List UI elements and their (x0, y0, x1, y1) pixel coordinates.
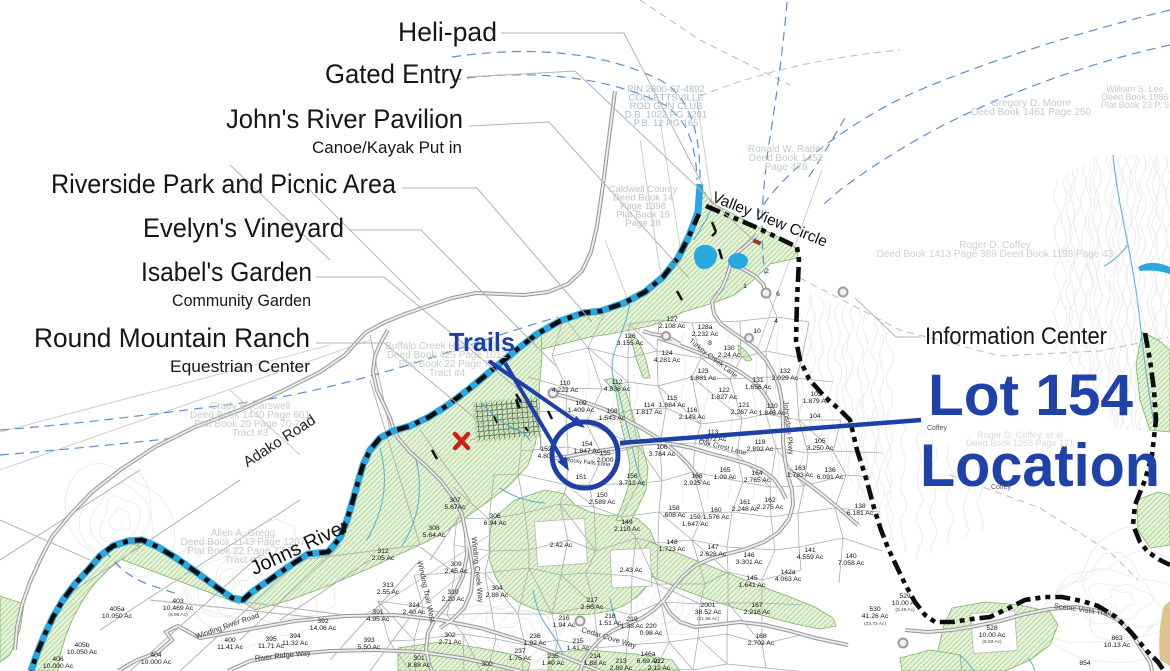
svg-text:104: 104 (809, 413, 821, 420)
svg-text:124: 124 (661, 350, 673, 357)
svg-text:6.69 Ac: 6.69 Ac (637, 658, 660, 665)
svg-text:(5.45 Ac): (5.45 Ac) (895, 607, 915, 613)
svg-text:2.89 Ac: 2.89 Ac (610, 665, 633, 671)
svg-text:2.42 Ac: 2.42 Ac (550, 542, 573, 549)
svg-text:4.222 Ac: 4.222 Ac (552, 387, 579, 394)
svg-text:1.817 Ac: 1.817 Ac (636, 409, 663, 416)
svg-text:6.94 Ac: 6.94 Ac (484, 520, 507, 527)
svg-text:141: 141 (804, 547, 816, 554)
svg-text:304: 304 (491, 585, 503, 592)
svg-text:110: 110 (560, 380, 571, 387)
svg-text:2.892 Ac: 2.892 Ac (747, 446, 774, 453)
svg-text:2.40 Ac: 2.40 Ac (403, 609, 426, 616)
svg-text:2.12 Ac: 2.12 Ac (648, 665, 671, 671)
svg-text:5.67Ac: 5.67Ac (444, 504, 466, 511)
svg-text:394: 394 (289, 633, 301, 640)
svg-text:1.723 Ac: 1.723 Ac (659, 546, 686, 553)
svg-text:395: 395 (265, 636, 277, 643)
svg-text:10.050 Ac: 10.050 Ac (67, 649, 98, 656)
svg-text:405a: 405a (109, 606, 124, 613)
svg-text:854: 854 (1079, 660, 1091, 667)
svg-text:128a: 128a (697, 324, 712, 331)
svg-text:146: 146 (743, 552, 755, 559)
svg-text:127: 127 (666, 316, 678, 323)
svg-text:1.38 Ac: 1.38 Ac (621, 623, 644, 630)
svg-text:Evelyn's Vineyard: Evelyn's Vineyard (143, 213, 344, 243)
svg-text:2.110 Ac: 2.110 Ac (614, 526, 641, 533)
svg-text:528: 528 (986, 625, 998, 632)
svg-text:2.925 Ac: 2.925 Ac (684, 480, 711, 487)
svg-text:406: 406 (52, 656, 64, 663)
svg-text:166: 166 (691, 473, 703, 480)
svg-text:4: 4 (774, 318, 778, 325)
svg-text:392: 392 (317, 618, 329, 625)
svg-text:Heli-pad: Heli-pad (398, 17, 497, 47)
svg-text:136: 136 (824, 467, 836, 474)
svg-text:120: 120 (766, 403, 778, 410)
svg-text:131: 131 (752, 377, 764, 384)
svg-text:155: 155 (599, 450, 611, 457)
svg-text:105: 105 (814, 438, 826, 445)
svg-text:119: 119 (755, 439, 766, 446)
svg-text:John's River Pavilion: John's River Pavilion (226, 104, 463, 134)
svg-text:151: 151 (575, 474, 587, 481)
svg-text:1.543 Ac: 1.543 Ac (599, 415, 626, 422)
svg-text:236: 236 (529, 633, 541, 640)
svg-text:1.879 Ac: 1.879 Ac (803, 398, 830, 405)
svg-text:126: 126 (624, 333, 636, 340)
svg-text:116: 116 (687, 407, 698, 414)
svg-text:163: 163 (794, 465, 806, 472)
svg-text:301: 301 (413, 655, 425, 662)
svg-text:10.13 Ac: 10.13 Ac (1104, 642, 1131, 649)
svg-text:4.063 Ac: 4.063 Ac (775, 576, 802, 583)
svg-text:138: 138 (854, 503, 866, 510)
svg-text:PIN 2600-67-4892COLLETTSVILLER: PIN 2600-67-4892COLLETTSVILLEROD GUN CLU… (625, 84, 707, 129)
svg-text:Canoe/Kayak Put in: Canoe/Kayak Put in (312, 138, 462, 157)
svg-text:145: 145 (746, 575, 758, 582)
svg-text:0.98 Ac: 0.98 Ac (640, 630, 663, 637)
svg-text:213: 213 (615, 658, 627, 665)
svg-text:38.52 Ac: 38.52 Ac (695, 609, 722, 616)
svg-text:302: 302 (444, 632, 456, 639)
svg-text:2.108 Ac: 2.108 Ac (659, 323, 686, 330)
svg-text:217: 217 (586, 597, 598, 604)
svg-text:216: 216 (558, 615, 570, 622)
svg-text:2001: 2001 (700, 602, 715, 609)
svg-text:(21.86 Ac): (21.86 Ac) (697, 616, 719, 622)
svg-text:313: 313 (382, 582, 394, 589)
svg-text:220: 220 (645, 623, 657, 630)
svg-text:2.216 Ac: 2.216 Ac (744, 609, 771, 616)
svg-text:312: 312 (377, 548, 389, 555)
svg-text:2.143 Ac: 2.143 Ac (679, 414, 706, 421)
svg-text:308: 308 (428, 525, 440, 532)
svg-text:8: 8 (708, 340, 712, 347)
svg-text:1.881 Ac: 1.881 Ac (690, 375, 717, 382)
svg-text:11.41 Ac: 11.41 Ac (217, 644, 244, 651)
svg-text:7.058 Ac: 7.058 Ac (838, 560, 865, 567)
svg-text:1.51 Ac: 1.51 Ac (599, 620, 622, 627)
svg-text:4.559 Ac: 4.559 Ac (797, 554, 824, 561)
svg-text:2.702 Ac: 2.702 Ac (748, 640, 775, 647)
svg-text:1.656 Ac: 1.656 Ac (745, 384, 772, 391)
svg-text:1: 1 (743, 283, 747, 290)
svg-text:Trails: Trails (449, 327, 515, 357)
svg-text:149: 149 (621, 519, 633, 526)
svg-text:309: 309 (450, 561, 462, 568)
svg-text:1.641 Ac: 1.641 Ac (739, 582, 766, 589)
svg-text:115: 115 (667, 395, 678, 402)
svg-text:300: 300 (481, 661, 493, 668)
svg-text:403: 403 (172, 598, 184, 605)
svg-text:1.884 Ac: 1.884 Ac (659, 402, 686, 409)
svg-text:2: 2 (765, 268, 769, 275)
svg-text:405b: 405b (74, 642, 89, 649)
svg-text:2.55 Ac: 2.55 Ac (377, 589, 400, 596)
svg-text:Riverside Park and Picnic Area: Riverside Park and Picnic Area (51, 169, 397, 199)
svg-text:108: 108 (606, 408, 618, 415)
svg-text:Information Center: Information Center (925, 323, 1107, 350)
svg-text:3.155 Ac: 3.155 Ac (617, 340, 644, 347)
svg-text:109: 109 (575, 400, 587, 407)
svg-text:(8.93 Ac): (8.93 Ac) (982, 639, 1002, 645)
svg-text:Gated Entry: Gated Entry (325, 59, 462, 89)
svg-text:156: 156 (626, 473, 638, 480)
svg-text:114: 114 (644, 402, 655, 409)
svg-text:2.267 Ac: 2.267 Ac (731, 409, 758, 416)
svg-text:2.71 Ac: 2.71 Ac (439, 639, 462, 646)
svg-text:41.26 Ac: 41.26 Ac (862, 613, 889, 620)
svg-text:5.64 Ac: 5.64 Ac (423, 532, 446, 539)
svg-text:2.765 Ac: 2.765 Ac (744, 477, 771, 484)
svg-text:10.00 Ac: 10.00 Ac (979, 632, 1006, 639)
svg-text:2.43 Ac: 2.43 Ac (620, 567, 643, 574)
svg-text:8.88 Ac: 8.88 Ac (408, 662, 431, 669)
svg-text:2.029 Ac: 2.029 Ac (772, 375, 799, 382)
svg-text:William S. LeeDeed Book 1886Pl: William S. LeeDeed Book 1886Plat Book 23… (1101, 84, 1169, 110)
svg-text:219: 219 (626, 616, 638, 623)
svg-text:1.409 Ac: 1.409 Ac (568, 407, 595, 414)
svg-text:2.88 Ac: 2.88 Ac (486, 592, 509, 599)
svg-text:(23.72 Ac): (23.72 Ac) (864, 621, 886, 627)
svg-text:1.75 Ac: 1.75 Ac (509, 655, 532, 662)
svg-text:2.20 Ac: 2.20 Ac (442, 596, 465, 603)
svg-text:6.181 Ac: 6.181 Ac (847, 510, 874, 517)
svg-text:159: 159 (689, 514, 701, 521)
svg-text:4.95 Ac: 4.95 Ac (367, 616, 390, 623)
svg-text:1.09 Ac: 1.09 Ac (714, 474, 737, 481)
svg-text:121: 121 (738, 402, 750, 409)
svg-text:1.88 Ac: 1.88 Ac (584, 660, 607, 667)
svg-text:112: 112 (612, 379, 623, 386)
svg-text:215: 215 (572, 638, 584, 645)
svg-text:307: 307 (449, 497, 461, 504)
svg-text:150: 150 (596, 492, 608, 499)
svg-text:4.836 Ac: 4.836 Ac (604, 386, 631, 393)
svg-text:(8.96 Ac): (8.96 Ac) (168, 612, 188, 618)
svg-text:130: 130 (723, 345, 735, 352)
svg-text:1.827 Ac: 1.827 Ac (711, 394, 738, 401)
svg-text:10: 10 (753, 328, 761, 335)
svg-text:122: 122 (718, 387, 730, 394)
svg-text:6.091 Ac: 6.091 Ac (817, 474, 844, 481)
svg-text:10.000 Ac: 10.000 Ac (43, 663, 74, 670)
svg-text:3.712 Ac: 3.712 Ac (619, 480, 646, 487)
svg-text:1.846 Ac: 1.846 Ac (759, 410, 786, 417)
svg-text:Lot 154: Lot 154 (928, 363, 1133, 428)
svg-text:168: 168 (755, 633, 767, 640)
svg-text:306: 306 (489, 513, 501, 520)
svg-text:1.576 Ac: 1.576 Ac (703, 514, 730, 521)
svg-text:1.41 Ac: 1.41 Ac (567, 645, 590, 652)
svg-text:235: 235 (547, 653, 559, 660)
svg-text:Equestrian Center: Equestrian Center (170, 357, 310, 376)
svg-text:1.92 Ac: 1.92 Ac (524, 640, 547, 647)
svg-text:154: 154 (581, 441, 593, 448)
svg-text:Community Garden: Community Garden (172, 291, 311, 310)
svg-text:1.40 Ac: 1.40 Ac (542, 660, 565, 667)
svg-text:142a: 142a (780, 569, 795, 576)
svg-text:2.589 Ac: 2.589 Ac (589, 499, 616, 506)
svg-text:Round Mountain Ranch: Round Mountain Ranch (34, 323, 310, 353)
svg-text:167: 167 (751, 602, 763, 609)
svg-text:161: 161 (739, 499, 751, 506)
svg-text:5.50 Ac: 5.50 Ac (358, 644, 381, 651)
svg-text:132: 132 (779, 368, 791, 375)
svg-text:2.45 Ac: 2.45 Ac (445, 568, 468, 575)
svg-text:6: 6 (776, 291, 780, 298)
svg-text:123: 123 (697, 368, 709, 375)
svg-text:Location: Location (920, 432, 1160, 499)
svg-text:147: 147 (707, 544, 719, 551)
svg-text:4.281 Ac: 4.281 Ac (654, 357, 681, 364)
svg-text:.608 Ac: .608 Ac (663, 512, 686, 519)
svg-text:1.94 Ac: 1.94 Ac (553, 622, 576, 629)
svg-text:529: 529 (899, 593, 911, 600)
svg-text:214: 214 (589, 653, 601, 660)
svg-text:160: 160 (710, 507, 722, 514)
svg-text:2.232 Ac: 2.232 Ac (692, 331, 719, 338)
svg-text:11.71 Ac: 11.71 Ac (258, 643, 285, 650)
svg-text:Isabel's Garden: Isabel's Garden (141, 257, 312, 287)
svg-text:3.764 Ac: 3.764 Ac (649, 451, 676, 458)
svg-text:162: 162 (764, 497, 776, 504)
svg-text:2.275 Ac: 2.275 Ac (757, 504, 784, 511)
svg-text:2.05 Ac: 2.05 Ac (372, 555, 395, 562)
svg-text:11.32 Ac: 11.32 Ac (282, 640, 309, 647)
svg-text:863: 863 (1111, 635, 1123, 642)
svg-text:404: 404 (150, 652, 162, 659)
svg-text:165: 165 (719, 467, 731, 474)
svg-text:391: 391 (372, 609, 384, 616)
svg-text:146a: 146a (640, 651, 655, 658)
svg-text:1.847 Ac: 1.847 Ac (574, 448, 601, 455)
svg-text:106: 106 (656, 444, 668, 451)
svg-text:14.06 Ac: 14.06 Ac (310, 625, 337, 632)
svg-text:10.469 Ac: 10.469 Ac (163, 605, 194, 612)
svg-text:530: 530 (869, 606, 881, 613)
svg-text:148: 148 (666, 539, 678, 546)
svg-text:237: 237 (514, 648, 526, 655)
svg-text:310: 310 (447, 589, 459, 596)
svg-text:2.248 Ac: 2.248 Ac (732, 506, 759, 513)
svg-text:3.301 Ac: 3.301 Ac (736, 559, 763, 566)
svg-text:2.86 Ac: 2.86 Ac (581, 604, 604, 611)
svg-text:103: 103 (810, 391, 822, 398)
svg-text:400: 400 (224, 637, 236, 644)
svg-text:2.24 Ac: 2.24 Ac (718, 352, 741, 359)
svg-text:10.050 Ac: 10.050 Ac (102, 613, 133, 620)
svg-text:314: 314 (408, 602, 420, 609)
svg-text:2.628 Ac: 2.628 Ac (700, 551, 727, 558)
svg-text:1.783 Ac: 1.783 Ac (787, 472, 814, 479)
svg-text:164: 164 (751, 470, 763, 477)
svg-text:158: 158 (668, 505, 680, 512)
svg-text:1.647 Ac: 1.647 Ac (682, 521, 709, 528)
svg-text:10.00 Ac: 10.00 Ac (892, 600, 919, 607)
svg-text:10.000 Ac: 10.000 Ac (141, 659, 172, 666)
svg-text:218: 218 (604, 613, 616, 620)
svg-text:393: 393 (363, 637, 375, 644)
svg-text:3.250 Ac: 3.250 Ac (807, 445, 834, 452)
svg-text:140: 140 (845, 553, 857, 560)
